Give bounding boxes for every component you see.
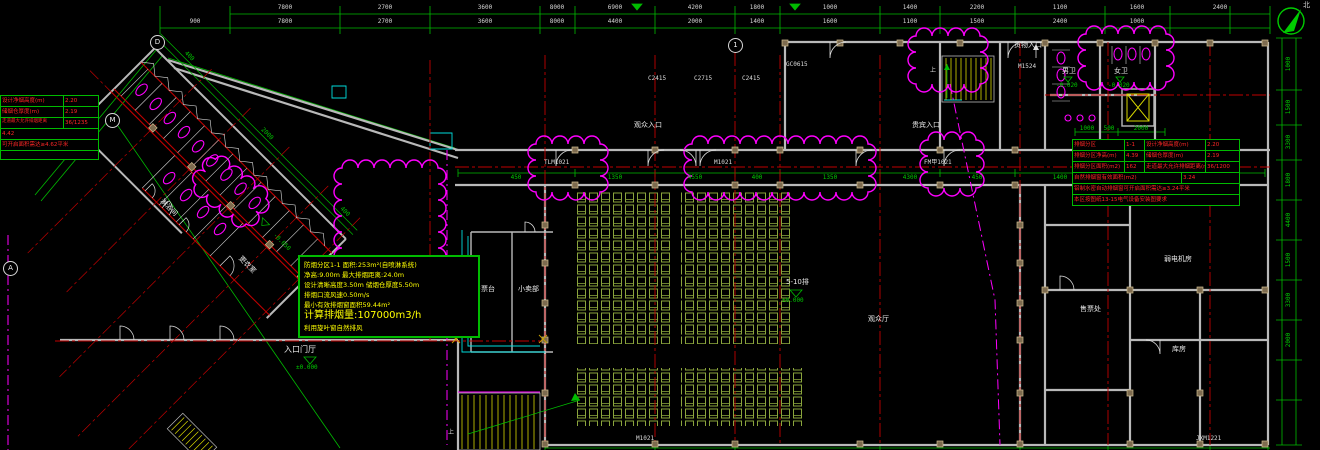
room-label-storage: 库房: [1172, 346, 1186, 353]
room-label-ticket-office: 售票处: [1080, 306, 1101, 313]
window-tag: C2415: [648, 76, 666, 82]
table-cell: 1-1: [1125, 140, 1145, 150]
dim-top2: 4400: [608, 19, 622, 25]
seat-rows: [576, 192, 804, 426]
elevation-seats: ±0.000: [782, 298, 804, 304]
room-label-male-wc: 男卫: [1062, 68, 1076, 75]
table-note: 本区按图纸13-15电气设备安装图要求: [1073, 195, 1239, 205]
table-cell: 2.20: [64, 96, 98, 106]
dim-top2: 3600: [478, 19, 492, 25]
room-label-locker: 更衣室: [237, 254, 258, 275]
dim-right: 3300: [1286, 293, 1292, 307]
dim-top2: 2700: [378, 19, 392, 25]
elevator-shaft: [1127, 94, 1149, 121]
door-tag: FM甲1021: [924, 160, 952, 166]
door-tag: JXM1221: [1196, 436, 1221, 442]
room-label-kiosk: 小卖部: [518, 286, 539, 293]
door-tag: M1524: [1018, 64, 1036, 70]
hatch-zigzag: [141, 56, 331, 246]
elevation-male-wc: -0.020: [1056, 83, 1078, 89]
dim-top1: 4200: [688, 5, 702, 11]
annotation-line: 最小有效排烟窗面积59.44m²: [304, 300, 474, 310]
door-tag: M1021: [636, 436, 654, 442]
table-cell: 36/1235: [64, 118, 98, 128]
window-tag: C2415: [742, 76, 760, 82]
wing-toilet-fixtures: [103, 82, 262, 241]
dim-top1: 7800: [278, 5, 292, 11]
dim-corridor: 450: [511, 175, 522, 181]
table-cell: 2.19: [64, 107, 98, 117]
dim-corridor: 1400: [1053, 175, 1067, 181]
dim-top1: 2200: [970, 5, 984, 11]
north-label: 北: [1303, 2, 1310, 9]
dim-wc: 1000: [1080, 126, 1094, 132]
room-label-entrance-hall: 入口门厅: [284, 346, 316, 354]
table-cell: 排烟分区净高(m): [1073, 151, 1125, 161]
table-note: 铝制水密自动排烟窗可开启面积需达≥3.24平米: [1073, 184, 1239, 194]
dim-top2: 8000: [550, 19, 564, 25]
annotation-line-exhaust-volume: 计算排烟量:107000m3/h: [304, 310, 474, 323]
room-label-audience-hall: 观众厅: [868, 316, 889, 323]
dim-top1: 1800: [750, 5, 764, 11]
room-label-cargo-entry: 货物入口: [1014, 42, 1042, 49]
dim-top2: 900: [190, 19, 201, 25]
dim-top1: 8000: [550, 5, 564, 11]
table-cell: 36/1200: [1206, 162, 1239, 172]
dim-top2: 7800: [278, 19, 292, 25]
table-cell: 储烟仓厚度(m): [1145, 151, 1206, 161]
room-label-female-wc: 女卫: [1114, 68, 1128, 75]
dim-top1: 6900: [608, 5, 622, 11]
dim-right: 3300: [1286, 135, 1292, 149]
table-cell: 储烟仓厚度(m): [1, 107, 64, 117]
table-cell-cropped: [1, 151, 98, 159]
stair-up-label: 上: [448, 430, 454, 436]
smoke-exhaust-table: 排烟分区 1-1 设计净烟高度(m) 2.20 排烟分区净高(m) 4.39 储…: [1072, 139, 1240, 206]
dim-top2: 1500: [970, 19, 984, 25]
door-tag: TLM1021: [544, 160, 569, 166]
wing-dim: 400: [183, 50, 196, 63]
elevation-female-wc: -0.020: [1108, 83, 1130, 89]
dim-top2: 1000: [1130, 19, 1144, 25]
dim-top2: 1400: [750, 19, 764, 25]
smoke-exhaust-table-left: 设计净烟高度(m) 2.20 储烟仓厚度(m) 2.19 走道最大允许排烟距离 …: [0, 95, 99, 160]
table-cell: 162: [1125, 162, 1145, 172]
room-label-vip-entry: 贵宾入口: [912, 122, 940, 129]
dim-top2: 1100: [903, 19, 917, 25]
dim-corridor: 4550: [688, 175, 702, 181]
dim-right: 1500: [1286, 100, 1292, 114]
dim-top1: 1000: [823, 5, 837, 11]
left-wing: 400 2000 400 -0.050 淋浴间 更衣室: [0, 9, 385, 450]
door-tag: M1021: [714, 160, 732, 166]
dim-wc: 500: [1104, 126, 1115, 132]
table-cell: 设计净烟高度(m): [1, 96, 64, 106]
annotation-line: 排烟口流风速0.50m/s: [304, 290, 474, 300]
dim-right: 1000: [1286, 57, 1292, 71]
cad-floorplan-canvas: 400 2000 400 -0.050 淋浴间 更衣室: [0, 0, 1320, 450]
elevation-entrance: ±0.000: [296, 365, 318, 371]
dim-top2: 2000: [688, 19, 702, 25]
table-cell: 自然排烟窗有效面积(m2): [1073, 173, 1182, 183]
grid-bubble-1: 1: [728, 38, 743, 53]
table-cell: 3.24: [1182, 173, 1239, 183]
dim-top1: 2700: [378, 5, 392, 11]
annotation-line: 防烟分区1-1 面积:253m²(自喷淋系统): [304, 260, 474, 270]
north-arrow-icon: [1278, 8, 1304, 34]
smoke-zone-annotation: 防烟分区1-1 面积:253m²(自喷淋系统) 净高:9.00m 最大排烟距离:…: [298, 255, 480, 338]
dim-top1: 1600: [1130, 5, 1144, 11]
dim-top1: 1400: [903, 5, 917, 11]
dim-top1: 1100: [1053, 5, 1067, 11]
dim-top1: 3600: [478, 5, 492, 11]
table-cell: 4.39: [1125, 151, 1145, 161]
dim-right: 4400: [1286, 213, 1292, 227]
grid-bubble-a: A: [3, 261, 18, 276]
dim-corridor: 450: [972, 175, 983, 181]
stair-up-label: 上: [930, 68, 936, 74]
annotation-line: 利用旋叶窗自然排风: [304, 323, 474, 333]
dim-wc: 2000: [1134, 126, 1148, 132]
dim-right: 2000: [1286, 333, 1292, 347]
window-tag: C2715: [694, 76, 712, 82]
dim-corridor: 4300: [903, 175, 917, 181]
dim-right: 1800: [1286, 173, 1292, 187]
table-cell: 排烟分区: [1073, 140, 1125, 150]
table-cell: 2.19: [1206, 151, 1239, 161]
window-tag: GC0615: [786, 62, 808, 68]
table-note: 可开启面积需达≥4.62平米: [1, 140, 98, 150]
table-cell: 走道最大允许排烟距离: [1, 118, 64, 128]
dim-corridor: 1350: [608, 175, 622, 181]
dim-corridor: 400: [752, 175, 763, 181]
dim-top2: 1600: [823, 19, 837, 25]
table-cell: 设计净烟高度(m): [1145, 140, 1206, 150]
wing-dim: 2000: [259, 126, 274, 141]
table-cell: 4.42: [1, 129, 98, 139]
table-cell: 2.20: [1206, 140, 1239, 150]
room-label-seat-rows: 5-10排: [786, 279, 809, 286]
dim-right: 1500: [1286, 253, 1292, 267]
room-label-audience-entry: 观众入口: [634, 122, 662, 129]
dim-corridor: 1350: [823, 175, 837, 181]
room-label-lv-room: 弱电机房: [1164, 256, 1192, 263]
dim-top2: 2400: [1053, 19, 1067, 25]
table-cell: 走道最大允许排烟距离(m): [1145, 162, 1206, 172]
table-cell: 排烟分区面积(m2): [1073, 162, 1125, 172]
grid-bubble-m: M: [105, 113, 120, 128]
dim-top1: 2400: [1213, 5, 1227, 11]
annotation-line: 设计清晰高度3.50m 储烟仓厚度5.50m: [304, 280, 474, 290]
annotation-line: 净高:9.00m 最大排烟距离:24.0m: [304, 270, 474, 280]
grid-bubble-d: D: [150, 35, 165, 50]
